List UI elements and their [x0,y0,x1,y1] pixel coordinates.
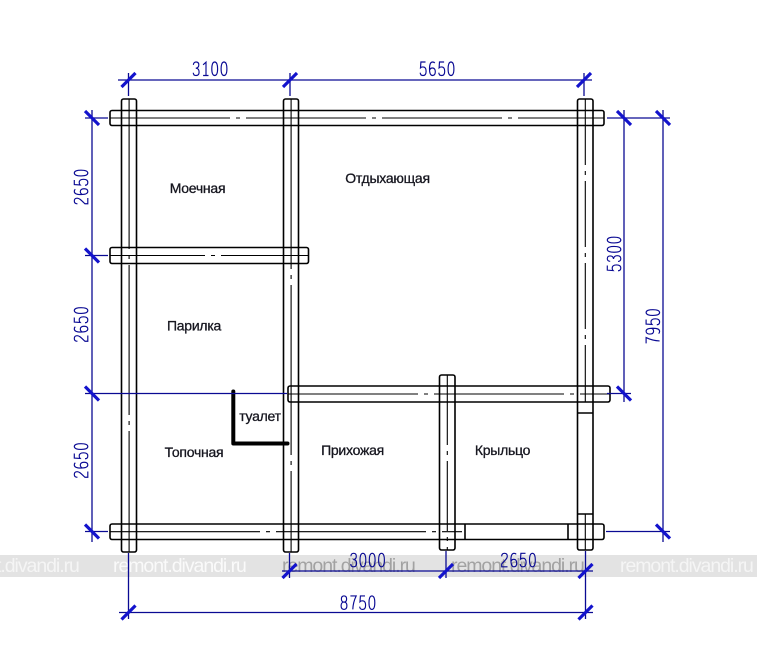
svg-text:Отдыхающая: Отдыхающая [345,170,430,186]
svg-text:remont.divandi.ru: remont.divandi.ru [620,555,753,577]
svg-text:Топочная: Топочная [165,444,224,460]
svg-text:Прихожая: Прихожая [321,442,384,458]
svg-text:Парилка: Парилка [167,318,222,334]
svg-text:remont.divandi.ru: remont.divandi.ru [282,555,415,577]
svg-text:Моечная: Моечная [170,180,226,196]
svg-text:Крыльцо: Крыльцо [475,442,531,458]
svg-text:remont.divandi.ru: remont.divandi.ru [451,555,584,577]
svg-text:remont.divandi.ru: remont.divandi.ru [0,555,79,577]
svg-text:туалет: туалет [239,408,281,424]
svg-text:remont.divandi.ru: remont.divandi.ru [113,555,246,577]
